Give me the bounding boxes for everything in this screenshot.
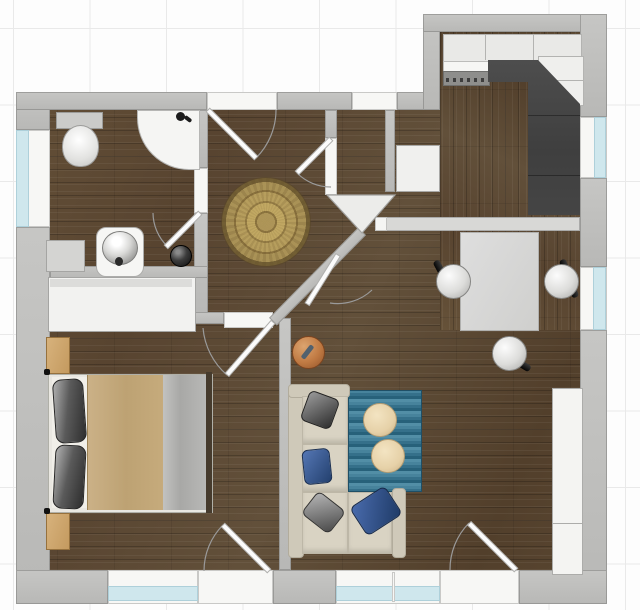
- wall-top-b: [277, 92, 352, 110]
- dining-chair-left[interactable]: [434, 262, 472, 300]
- round-pouf[interactable]: [371, 439, 405, 473]
- living-builtin-wardrobe[interactable]: [552, 388, 583, 525]
- sideboard[interactable]: [396, 145, 440, 192]
- sofa-cushion-blue: [301, 448, 333, 486]
- washbasin-tap-icon: [115, 257, 123, 266]
- bed-corner-post: [44, 369, 50, 375]
- entry-door-opening: [207, 92, 277, 110]
- bed-pillow-top: [52, 378, 87, 444]
- wall-top-a: [16, 92, 207, 110]
- hall-door-opening: [325, 138, 337, 195]
- round-pouf[interactable]: [363, 403, 397, 437]
- bed-corner-post: [44, 508, 50, 514]
- bathroom-cabinet[interactable]: [46, 240, 85, 272]
- wall-bedroom-top: [194, 312, 224, 324]
- cabinet-divider: [533, 35, 534, 60]
- dishwasher-vents-icon: [446, 78, 485, 82]
- bed-pillow-bottom: [52, 444, 86, 510]
- window-left-glass: [16, 130, 29, 227]
- half-wall-end-cap: [375, 217, 387, 231]
- dining-chair-bottom[interactable]: [490, 334, 532, 372]
- window-dining-glass: [593, 267, 606, 330]
- chair-seat: [436, 264, 471, 299]
- cabinet-divider: [485, 35, 486, 60]
- wall-right-middle: [580, 178, 607, 267]
- bed-foot-runner: [163, 375, 206, 510]
- chair-seat: [544, 264, 579, 299]
- wall-bottom-a: [16, 570, 108, 604]
- wall-left-lower: [16, 227, 50, 604]
- floor-plan-canvas: [0, 0, 640, 610]
- living-terrace-opening: [440, 570, 519, 604]
- wall-hall-column-b: [385, 110, 395, 192]
- half-wall-kitchen-dining: [375, 217, 580, 231]
- wall-right-upper: [580, 14, 607, 117]
- window-living-divider: [392, 572, 395, 602]
- wall-bottom-c: [519, 570, 607, 604]
- wall-right-lower: [580, 330, 607, 604]
- bedroom-terrace-opening: [198, 570, 273, 604]
- nightstand-bottom[interactable]: [46, 513, 70, 550]
- chair-seat: [492, 336, 527, 371]
- bed-footboard: [206, 372, 212, 513]
- bed-blanket: [87, 375, 164, 510]
- window-bedroom-glass: [108, 586, 198, 601]
- dining-chair-right[interactable]: [542, 262, 580, 300]
- bedroom-wardrobe-top: [50, 279, 192, 287]
- window-living-glass: [336, 586, 440, 601]
- bathroom-door-opening: [194, 168, 208, 213]
- wall-hall-column-a: [325, 110, 337, 138]
- top-wall-opening: [352, 92, 397, 110]
- round-ornament-rug[interactable]: [222, 178, 310, 266]
- canister[interactable]: [170, 245, 192, 267]
- sofa-armrest-right: [392, 488, 406, 558]
- nightstand-top[interactable]: [46, 337, 70, 374]
- wall-bottom-b: [273, 570, 336, 604]
- window-kitchen-glass: [594, 117, 606, 178]
- bedroom-door-opening: [224, 312, 273, 328]
- living-builtin-wardrobe[interactable]: [552, 523, 583, 575]
- toilet[interactable]: [62, 125, 99, 167]
